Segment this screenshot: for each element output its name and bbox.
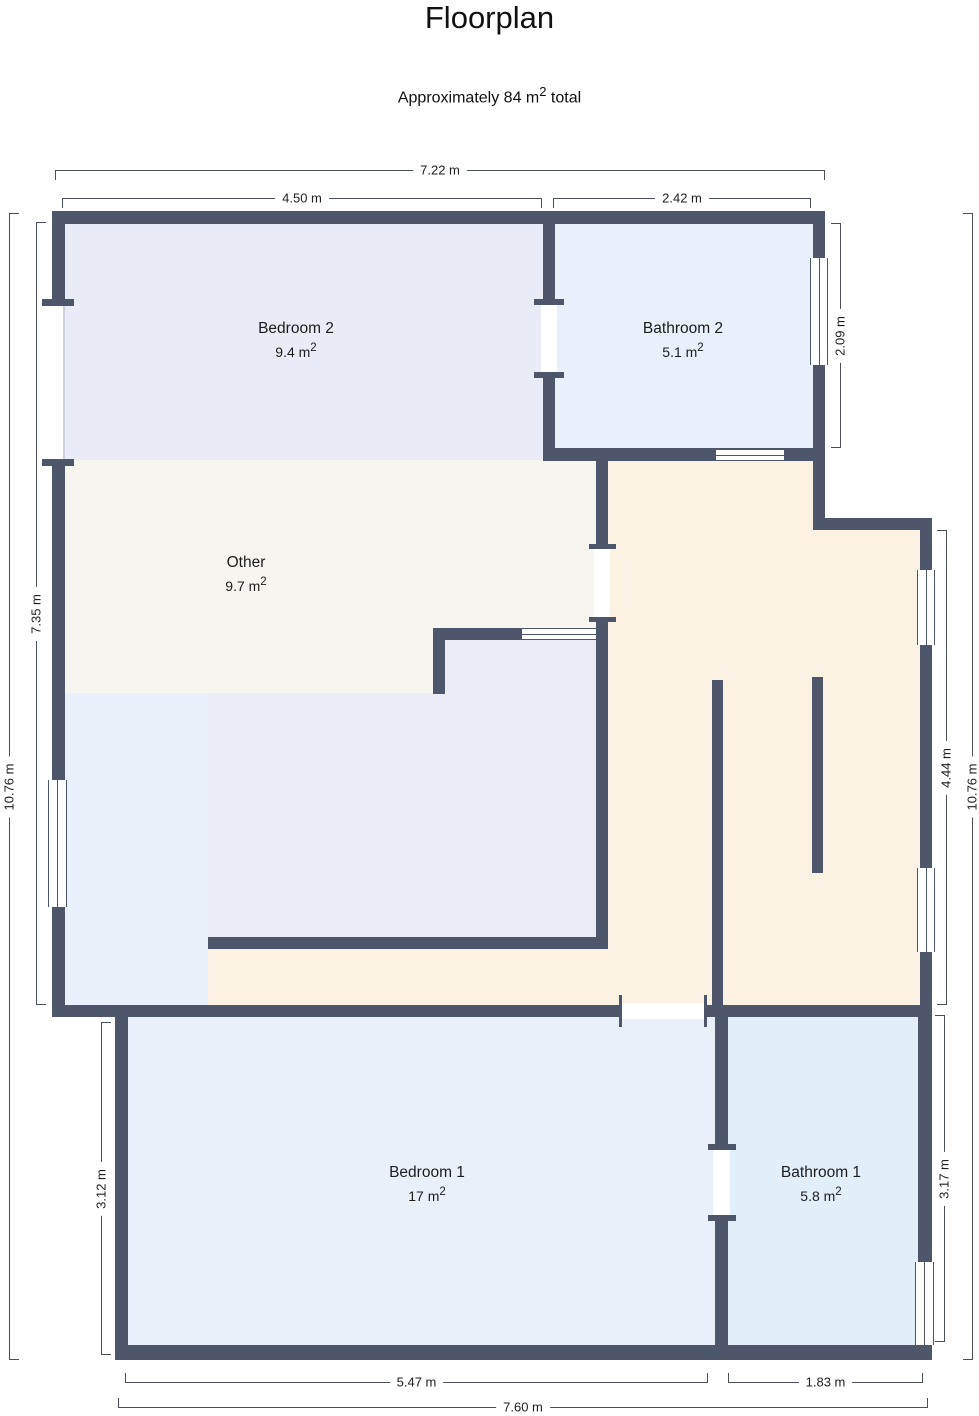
room-area: 9.4 m2 [258,342,334,360]
window [48,780,67,907]
door-jamb [534,299,564,305]
page-title: Floorplan [0,0,979,36]
window [810,258,828,365]
wall [52,907,65,1017]
hall-floor [608,530,920,1005]
subtitle-text: Approximately 84 m [398,89,539,106]
room-label-bedroom2: Bedroom 2 9.4 m2 [258,320,334,360]
wall [715,1017,728,1147]
wall [596,622,608,949]
room-area-superscript: 2 [697,342,703,354]
hall-upper-floor [608,460,825,530]
wall [115,1005,128,1360]
dimension-top-right: 2.42 m [553,198,811,199]
wall [813,518,932,530]
room-name: Bathroom 2 [643,320,723,338]
door-jamb [708,1144,736,1150]
subtitle-suffix: total [546,89,581,106]
wall [596,461,608,547]
room-area-value: 5.8 m [800,1188,835,1204]
room-area: 5.1 m2 [643,342,723,360]
dimension-label: 4.44 m [939,741,954,795]
wall [115,1345,932,1360]
room-area-value: 9.4 m [275,344,310,360]
room-label-bathroom1: Bathroom 1 5.8 m2 [781,1164,861,1204]
window [917,570,935,645]
dimension-label: 7.22 m [413,163,467,178]
dimension-right-outer: 10.76 m [972,213,973,1360]
room-area-superscript: 2 [835,1186,841,1198]
room-area-value: 17 m [408,1188,439,1204]
floorplan-page: Floorplan Approximately 84 m2 total [0,0,979,1416]
dimension-label: 2.42 m [655,191,709,206]
room-name: Bedroom 1 [389,1164,465,1182]
open-wall-floor-edge [63,306,65,461]
dimension-label: 2.09 m [833,309,848,363]
dimension-bottom-right: 1.83 m [728,1382,923,1383]
room-name: Bathroom 1 [781,1164,861,1182]
wall [52,211,825,224]
window [716,449,784,461]
wall [52,1005,622,1017]
dimension-label: 4.50 m [275,191,329,206]
dimension-left-lower: 3.12 m [101,1022,102,1355]
left-strip-floor [65,693,208,1005]
dimension-label: 1.83 m [799,1375,853,1390]
interior-room-floor-notch [445,640,596,693]
door-jamb [619,995,622,1027]
room-area-superscript: 2 [439,1186,445,1198]
window [917,868,935,952]
room-area-value: 5.1 m [662,344,697,360]
wall [812,677,823,873]
dimension-right-mid: 4.44 m [946,530,947,1005]
dimension-right-upper: 2.09 m [840,223,841,448]
dimension-label: 7.60 m [496,1400,550,1415]
dimension-label: 10.76 m [2,756,17,817]
room-label-bedroom1: Bedroom 1 17 m2 [389,1164,465,1204]
room-area-value: 9.7 m [225,578,260,594]
dimension-top-left: 4.50 m [62,198,542,199]
dimension-left-outer: 10.76 m [9,213,10,1360]
dimension-label: 5.47 m [390,1375,444,1390]
wall [543,211,555,303]
dimension-label: 7.35 m [29,587,44,641]
wall [715,1221,728,1345]
dimension-top-total: 7.22 m [55,170,825,171]
wall [712,680,723,1005]
dimension-label: 3.12 m [94,1162,109,1216]
door-opening [713,1150,730,1218]
dimension-label: 10.76 m [965,756,979,817]
dimension-right-lower: 3.17 m [944,1015,945,1342]
door-jamb [42,299,74,306]
interior-room-floor [208,693,596,937]
door-opening [594,549,610,617]
room-label-other: Other 9.7 m2 [225,554,266,594]
room-area: 5.8 m2 [781,1186,861,1204]
dimension-label: 3.17 m [937,1152,952,1206]
door-opening [622,1003,704,1019]
wall [52,211,65,306]
dimension-left-upper: 7.35 m [36,222,37,1005]
page-subtitle: Approximately 84 m2 total [0,84,979,107]
door-opening [541,303,557,374]
wall-opening [522,628,596,640]
wall [208,937,608,949]
room-name: Other [225,554,266,572]
wall [52,461,65,780]
room-area-superscript: 2 [310,342,316,354]
wall [433,628,522,640]
room-area-superscript: 2 [260,576,266,588]
window [915,1262,934,1345]
wall [705,1005,932,1017]
dimension-bottom-total: 7.60 m [118,1407,928,1408]
room-area: 9.7 m2 [225,576,266,594]
room-name: Bedroom 2 [258,320,334,338]
door-jamb [589,544,616,549]
room-label-bathroom2: Bathroom 2 5.1 m2 [643,320,723,360]
room-area: 17 m2 [389,1186,465,1204]
wall [918,1005,932,1262]
dimension-bottom-left: 5.47 m [125,1382,708,1383]
door-jamb [704,995,707,1027]
